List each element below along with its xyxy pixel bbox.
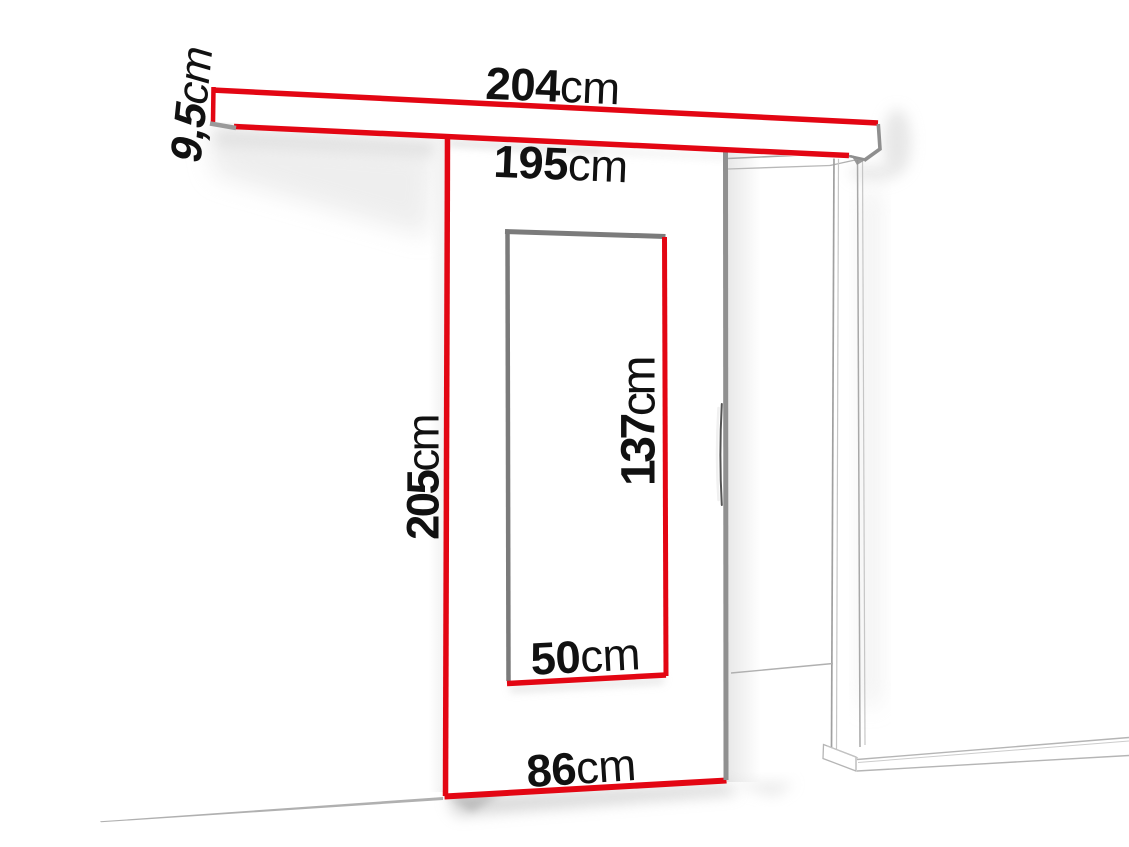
svg-text:205cm: 205cm bbox=[398, 416, 449, 540]
svg-text:137cm: 137cm bbox=[613, 359, 666, 486]
svg-text:195cm: 195cm bbox=[493, 136, 629, 193]
svg-text:204cm: 204cm bbox=[485, 58, 621, 115]
svg-text:50cm: 50cm bbox=[529, 628, 641, 684]
svg-text:86cm: 86cm bbox=[525, 739, 637, 797]
